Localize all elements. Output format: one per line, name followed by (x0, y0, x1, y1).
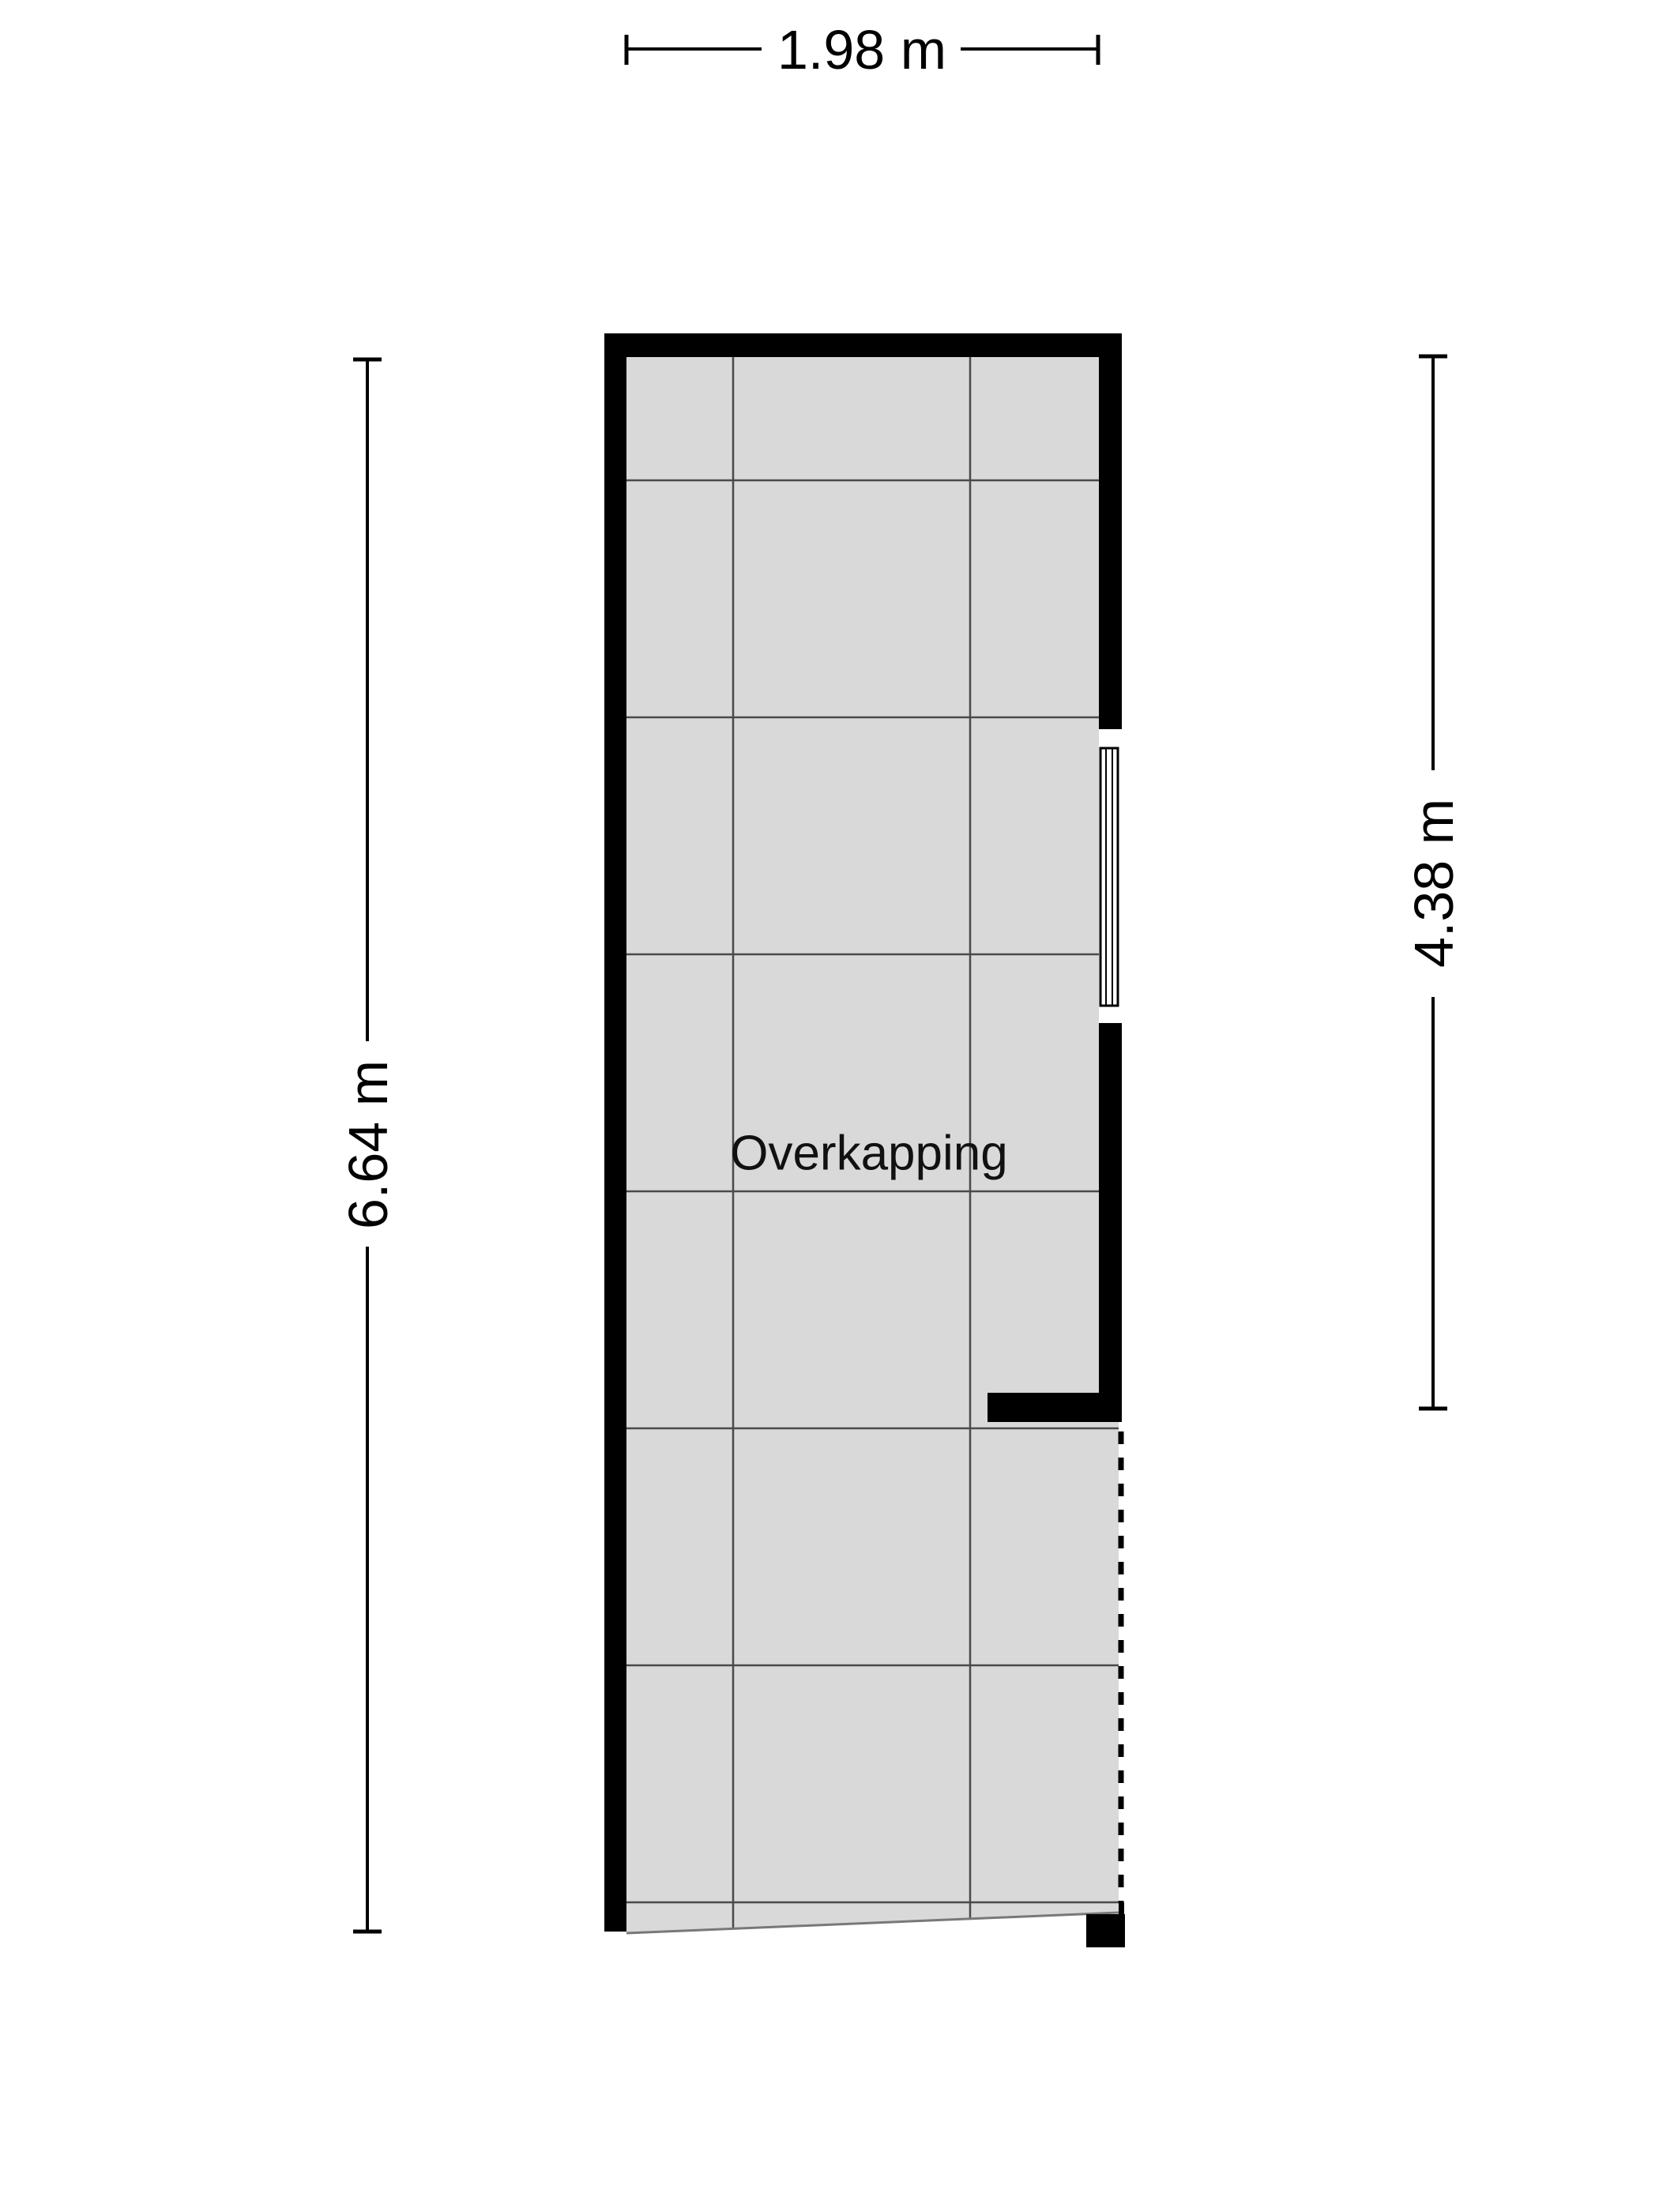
window-glazing (1100, 748, 1118, 1006)
wall-left (604, 333, 626, 1932)
dimension-right: 4.38 m (1403, 356, 1465, 1409)
floor-plan-page: 1.98 m 6.64 m 4.38 m Overkapping (0, 0, 1659, 2212)
room-label: Overkapping (730, 1126, 1008, 1180)
floor-plan-canvas: 1.98 m 6.64 m 4.38 m Overkapping (0, 0, 1659, 2212)
window-right (1099, 729, 1119, 1023)
wall-right-upper (1099, 357, 1122, 729)
dimension-top: 1.98 m (626, 19, 1098, 81)
dimension-left: 6.64 m (337, 359, 399, 1932)
dimension-left-label: 6.64 m (337, 1060, 399, 1229)
wall-top (604, 333, 1122, 357)
wall-connector-above-post (1119, 1902, 1124, 1914)
dimension-right-label: 4.38 m (1403, 799, 1465, 968)
post-bottom-right (1086, 1914, 1125, 1947)
dimension-top-label: 1.98 m (777, 19, 946, 81)
